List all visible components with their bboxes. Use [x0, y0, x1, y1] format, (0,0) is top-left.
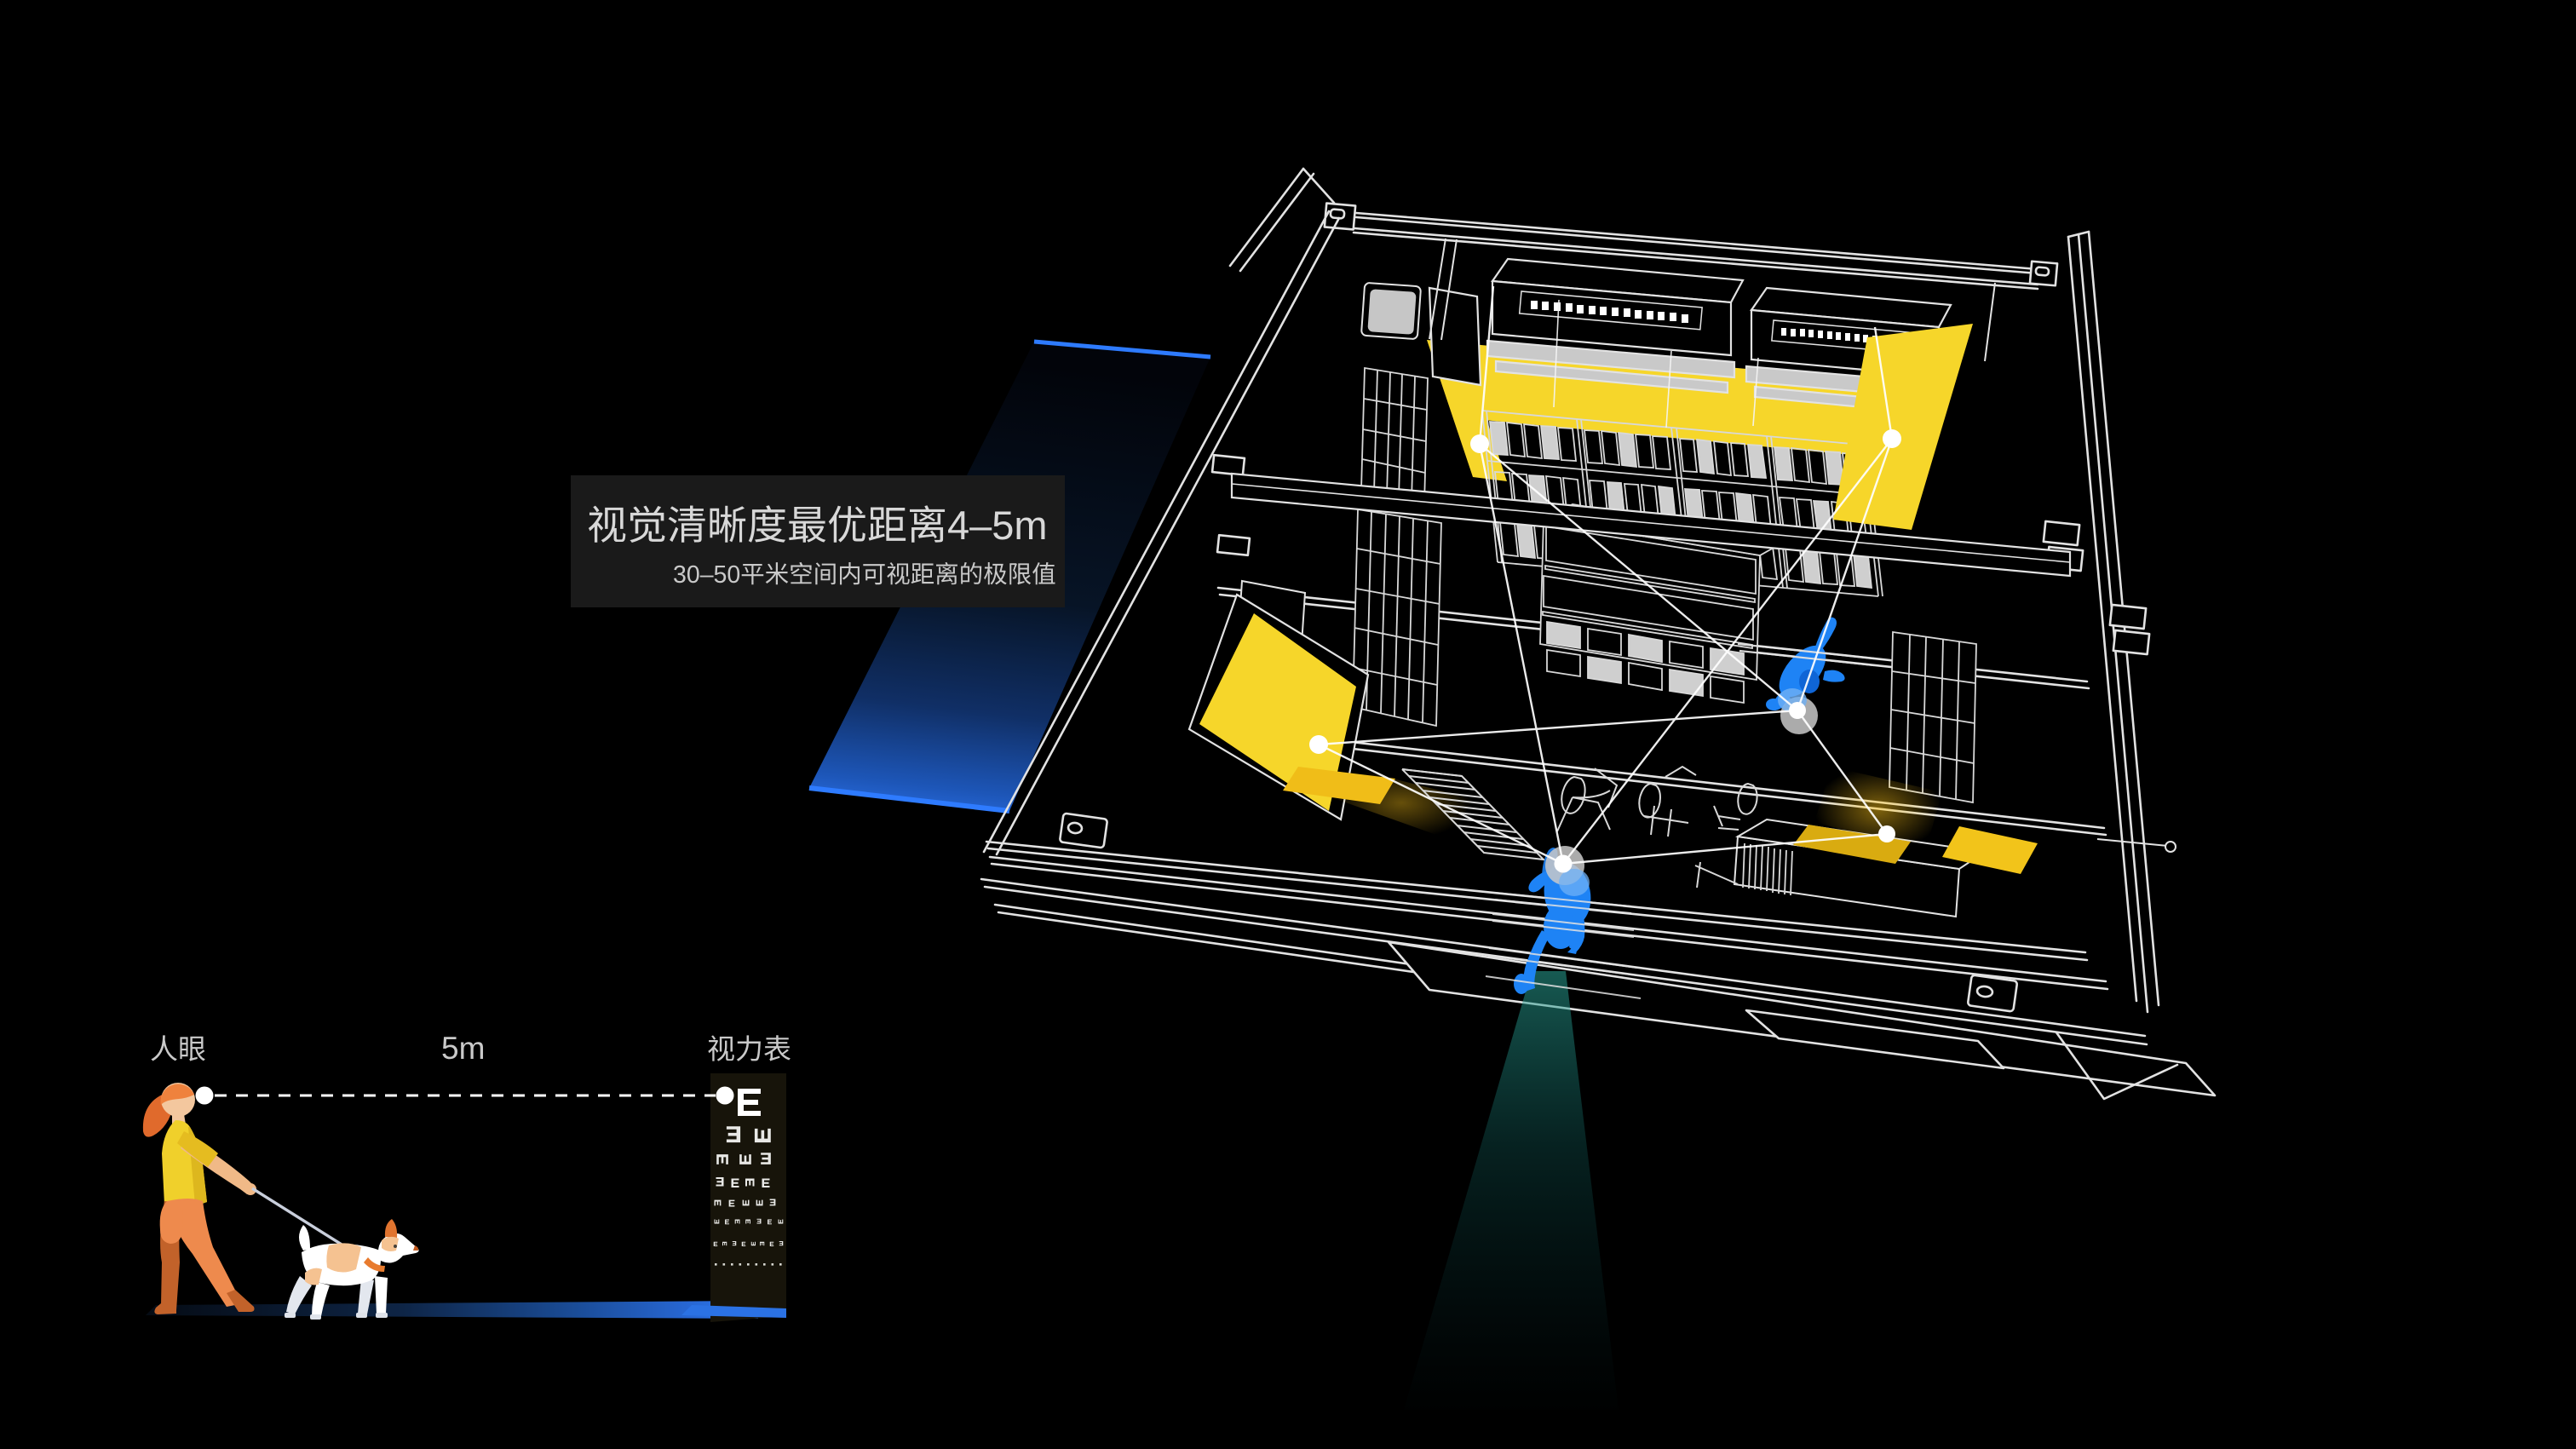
svg-text:5m: 5m — [441, 1031, 485, 1066]
svg-text:30–50: 30–50 — [673, 561, 740, 589]
svg-text:4–5m: 4–5m — [947, 503, 1048, 548]
